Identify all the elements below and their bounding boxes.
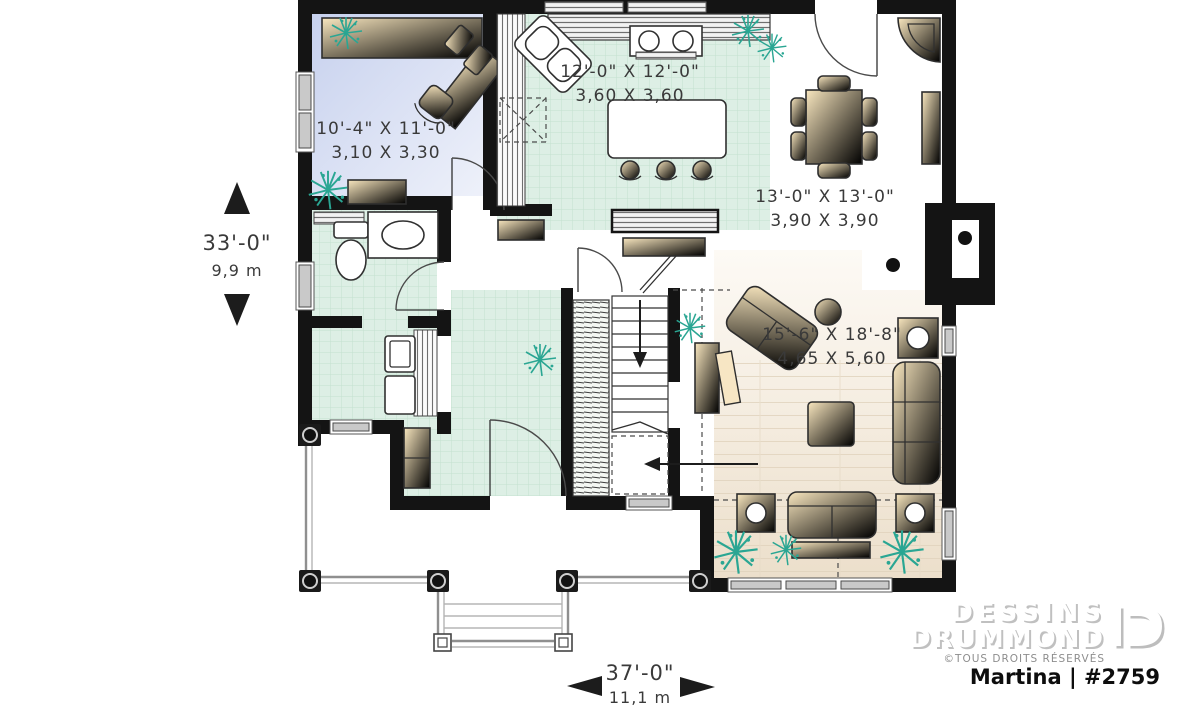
- width-imperial: 37'-0": [605, 661, 674, 685]
- lamp-table-left: [737, 494, 775, 532]
- dining-furniture: [791, 18, 940, 178]
- buffet: [922, 92, 940, 164]
- bath-left-window: [296, 262, 314, 310]
- foyer-floor: [451, 290, 561, 496]
- breakfast-bar: [612, 210, 718, 232]
- lamp-table-right: [896, 494, 934, 532]
- arrow-right-icon: [680, 677, 715, 697]
- living-dim-metric: 4,65 X 5,60: [777, 349, 886, 369]
- brand-logo: DESSINS DESSINS DRUMMOND DRUMMOND ©TOUS …: [909, 598, 1164, 692]
- overall-depth-dimension: 33'-0" 9,9 m: [202, 182, 271, 326]
- brand-line2: DRUMMOND: [909, 624, 1105, 654]
- living-dim-imperial: 15'-6" X 18'-8": [762, 325, 902, 345]
- depth-imperial: 33'-0": [202, 231, 271, 255]
- arrow-up-icon: [224, 182, 250, 214]
- sofa-bottom: [788, 492, 876, 538]
- cooktop: [630, 26, 702, 59]
- patio-door: [815, 0, 877, 76]
- step-posts: [434, 634, 572, 651]
- firebox-outer: [952, 220, 979, 278]
- foyer-window: [626, 496, 672, 510]
- bar-bench: [623, 238, 705, 256]
- coffee-table: [792, 542, 870, 558]
- plan-name: Martina | #2759: [970, 665, 1160, 690]
- laundry-louver-doors: [414, 330, 437, 416]
- office-dim-imperial: 10'-4" X 11'-0": [316, 119, 456, 139]
- dining-dim-metric: 3,90 X 3,90: [770, 211, 879, 231]
- arrow-down-icon: [224, 294, 250, 326]
- fireplace: [862, 203, 995, 305]
- laundry-window: [330, 420, 372, 434]
- floor-plan-page: 10'-4" X 11'-0" 3,10 X 3,30 12'-0" X 12'…: [0, 0, 1200, 711]
- kitchen-dim-metric: 3,60 X 3,60: [575, 86, 684, 106]
- closet-hatch: [573, 300, 609, 496]
- kitchen-island: [608, 100, 726, 180]
- stair-direction-arrow: [644, 457, 660, 471]
- dryer: [385, 376, 415, 414]
- dining-table-set: [791, 76, 877, 178]
- living-bottom-windows: [728, 578, 892, 592]
- depth-metric: 9,9 m: [211, 261, 262, 280]
- round-side-table: [815, 299, 841, 325]
- overall-width-dimension: 37'-0" 11,1 m: [567, 661, 715, 707]
- arrow-left-icon: [567, 676, 602, 696]
- front-steps: [434, 592, 572, 651]
- office-left-window: [296, 72, 314, 152]
- brand-d-icon: [1114, 606, 1165, 649]
- vanity-sink: [368, 212, 438, 258]
- toilet: [334, 222, 368, 280]
- island-stools: [619, 161, 713, 180]
- floor-plan-drawing: 10'-4" X 11'-0" 3,10 X 3,30 12'-0" X 12'…: [0, 0, 1200, 711]
- credenza: [348, 180, 406, 204]
- sofa-right: [893, 362, 940, 484]
- kitchen-dim-imperial: 12'-0" X 12'-0": [560, 62, 700, 82]
- dining-dim-imperial: 13'-0" X 13'-0": [755, 187, 895, 207]
- dining-right-window: [942, 326, 956, 356]
- brand-rights: ©TOUS DROITS RÉSERVÉS: [944, 652, 1105, 665]
- office-dim-metric: 3,10 X 3,30: [331, 143, 440, 163]
- living-right-window: [942, 508, 956, 560]
- ottoman: [808, 402, 854, 446]
- hall-console: [498, 220, 544, 240]
- lamp-table-top: [898, 318, 938, 358]
- width-metric: 11,1 m: [609, 688, 671, 707]
